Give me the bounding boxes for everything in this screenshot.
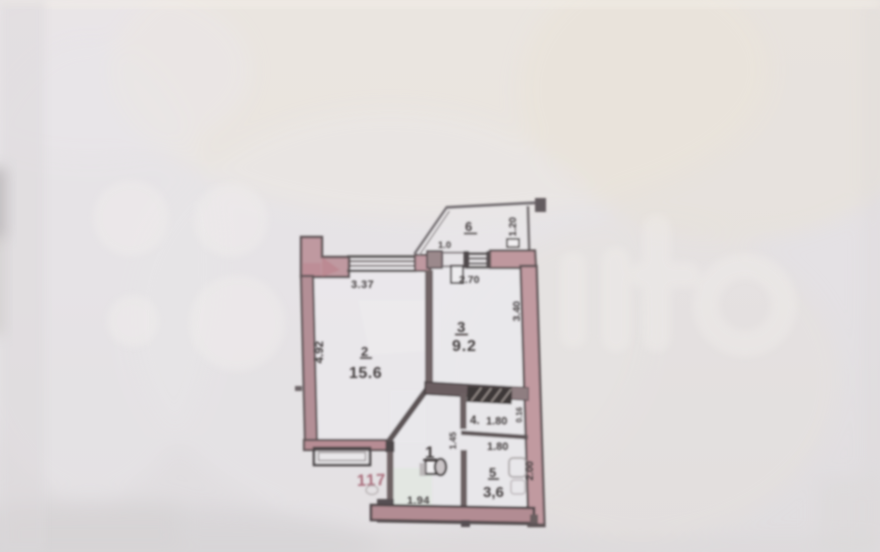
svg-text:4.: 4. (470, 415, 480, 427)
svg-text:3.40: 3.40 (511, 301, 523, 322)
svg-text:4.92: 4.92 (314, 341, 326, 363)
svg-text:3.37: 3.37 (351, 279, 374, 291)
svg-text:15.6: 15.6 (349, 365, 382, 382)
svg-text:1.80: 1.80 (487, 441, 508, 453)
svg-text:2.70: 2.70 (459, 274, 480, 286)
svg-text:5: 5 (489, 465, 496, 480)
svg-text:1.0: 1.0 (438, 240, 451, 251)
svg-text:6: 6 (465, 219, 472, 234)
svg-text:117: 117 (356, 471, 386, 490)
svg-text:0.16: 0.16 (515, 406, 524, 422)
svg-text:2.00: 2.00 (525, 461, 536, 481)
svg-text:1.94: 1.94 (407, 495, 430, 507)
svg-text:2: 2 (361, 344, 368, 359)
svg-text:9.2: 9.2 (452, 338, 477, 355)
svg-text:3,6: 3,6 (483, 484, 504, 501)
svg-text:1.20: 1.20 (508, 217, 519, 237)
svg-text:1.80: 1.80 (486, 416, 507, 428)
svg-text:3: 3 (457, 319, 465, 336)
svg-text:1.45: 1.45 (448, 432, 458, 450)
